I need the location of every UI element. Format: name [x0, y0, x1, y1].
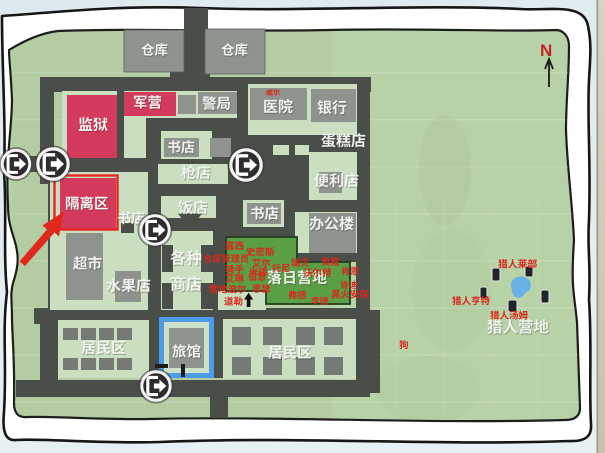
svg-text:N: N [540, 41, 552, 60]
